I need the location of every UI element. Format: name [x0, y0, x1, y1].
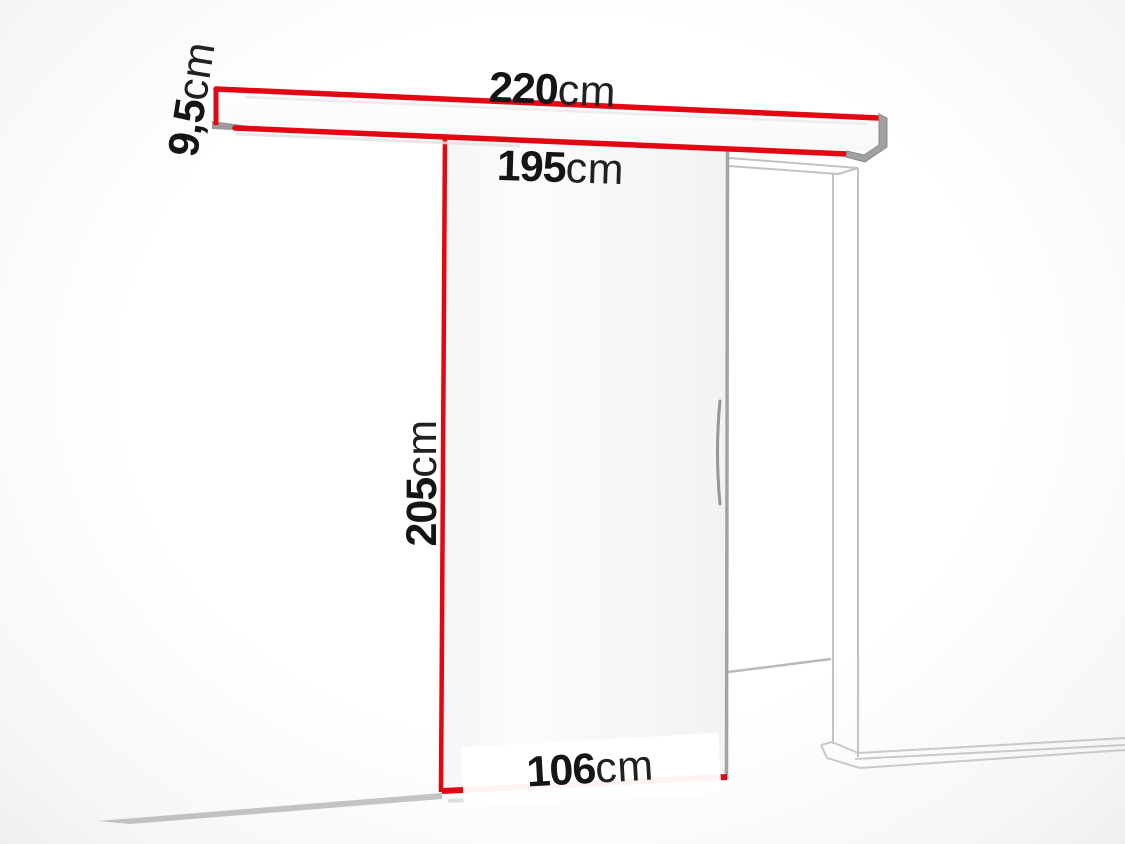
dim-label-inner-width: 195cm — [496, 142, 625, 194]
door-panel — [441, 131, 728, 801]
wall-floor-junction-line — [728, 659, 831, 672]
door-face — [442, 131, 728, 793]
door-right-edge — [727, 149, 728, 779]
dimension-diagram-canvas: 220cm 9,5cm 195cm 205cm 106cm — [0, 0, 1125, 844]
dim-track-length-unit: cm — [557, 66, 617, 116]
dim-inner-width-value: 195 — [496, 142, 566, 192]
door-frame — [728, 158, 1125, 768]
baseboard — [821, 738, 1125, 768]
sliding-door-dimension-diagram: 220cm 9,5cm 195cm 205cm 106cm — [0, 0, 1125, 844]
baseboard-cap-top-edge — [821, 742, 832, 745]
dim-door-width-unit: cm — [594, 741, 655, 792]
dim-label-track-height: 9,5cm — [159, 39, 224, 160]
floor-line — [98, 793, 442, 824]
dim-door-width-value: 106 — [525, 745, 596, 797]
dim-door-height-unit: cm — [398, 419, 446, 477]
dim-track-length-value: 220 — [488, 63, 559, 114]
dim-track-height-unit: cm — [168, 39, 225, 104]
dim-door-height-value: 205 — [398, 478, 446, 547]
dim-inner-width-unit: cm — [565, 144, 625, 194]
baseboard-top-back-line — [858, 738, 1125, 753]
dim-label-track-length: 220cm — [488, 63, 617, 116]
dim-track-height-value: 9,5 — [159, 96, 215, 160]
frame-lintel-corner-line — [838, 168, 858, 174]
dim-label-door-height: 205cm — [398, 419, 446, 546]
frame-lintel-inner-line — [729, 166, 838, 174]
baseboard-top-back-corner — [832, 742, 858, 753]
dim-label-door-width: 106cm — [525, 741, 655, 796]
baseboard-cap-left-edge — [821, 745, 827, 758]
